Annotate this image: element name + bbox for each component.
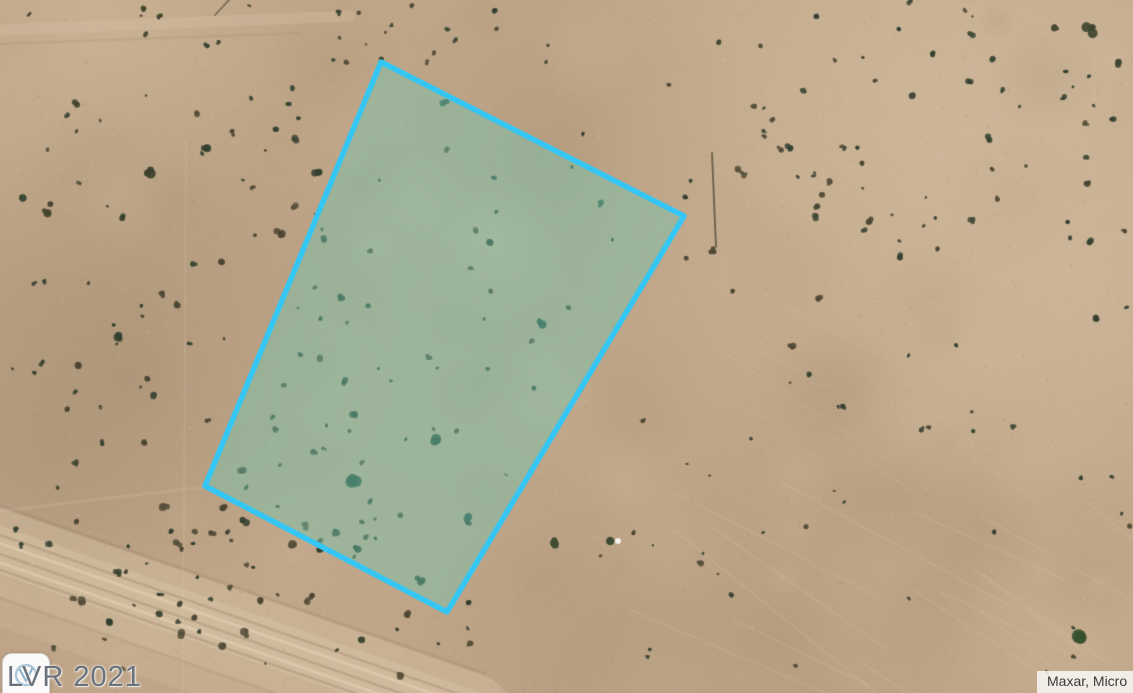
watermark-text: LVR 2021: [7, 661, 142, 693]
map-attribution: Maxar, Micro: [1037, 671, 1133, 693]
satellite-map-view: LVR 2021 Maxar, Micro: [0, 0, 1133, 693]
parcel-boundary-polygon: [205, 62, 684, 612]
parcel-overlay-layer: [0, 0, 1133, 693]
attribution-text: Maxar, Micro: [1047, 673, 1127, 689]
